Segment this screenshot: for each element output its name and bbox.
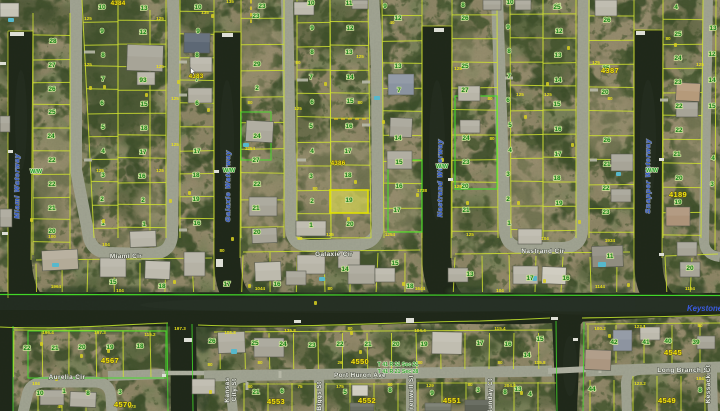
svg-text:16: 16 bbox=[138, 173, 146, 180]
svg-text:8: 8 bbox=[507, 48, 511, 55]
svg-text:80: 80 bbox=[357, 100, 363, 105]
svg-text:8: 8 bbox=[503, 389, 507, 396]
svg-text:24: 24 bbox=[462, 135, 470, 142]
svg-text:3: 3 bbox=[710, 181, 714, 188]
svg-text:100: 100 bbox=[48, 234, 56, 239]
svg-text:21: 21 bbox=[48, 205, 56, 212]
svg-text:19: 19 bbox=[420, 341, 428, 348]
svg-text:14: 14 bbox=[394, 135, 402, 142]
svg-text:75: 75 bbox=[297, 384, 303, 389]
svg-text:125: 125 bbox=[294, 106, 302, 111]
svg-text:42: 42 bbox=[610, 339, 618, 346]
svg-text:25: 25 bbox=[48, 109, 56, 116]
svg-text:20: 20 bbox=[392, 341, 400, 348]
svg-text:104: 104 bbox=[496, 288, 504, 293]
svg-text:1964: 1964 bbox=[51, 284, 62, 289]
svg-text:Sunday Ct: Sunday Ct bbox=[487, 378, 494, 411]
svg-text:125: 125 bbox=[466, 232, 474, 237]
svg-text:13: 13 bbox=[140, 5, 148, 12]
svg-text:14: 14 bbox=[554, 77, 562, 84]
svg-text:Galaxie Waterway: Galaxie Waterway bbox=[225, 150, 232, 222]
svg-text:24: 24 bbox=[674, 55, 682, 62]
svg-text:197.3: 197.3 bbox=[174, 326, 186, 331]
svg-text:17: 17 bbox=[526, 275, 534, 282]
svg-text:125: 125 bbox=[156, 64, 164, 69]
svg-text:12: 12 bbox=[139, 29, 147, 36]
svg-text:40: 40 bbox=[664, 338, 672, 345]
svg-text:W/W: W/W bbox=[646, 168, 659, 174]
svg-text:21: 21 bbox=[252, 205, 260, 212]
svg-text:39: 39 bbox=[692, 339, 700, 346]
svg-text:19: 19 bbox=[555, 200, 563, 207]
svg-text:2: 2 bbox=[141, 197, 145, 204]
svg-text:4: 4 bbox=[528, 391, 532, 398]
svg-text:Galaxie Cir: Galaxie Cir bbox=[315, 251, 353, 258]
svg-text:16: 16 bbox=[193, 220, 201, 227]
svg-text:W/W: W/W bbox=[30, 169, 43, 175]
svg-text:1934: 1934 bbox=[605, 238, 616, 243]
svg-text:18: 18 bbox=[158, 283, 166, 290]
svg-text:125: 125 bbox=[696, 62, 704, 67]
svg-text:8: 8 bbox=[310, 49, 314, 56]
svg-text:26: 26 bbox=[337, 360, 343, 365]
svg-text:4189: 4189 bbox=[669, 190, 687, 199]
svg-text:13: 13 bbox=[709, 25, 717, 32]
svg-text:125: 125 bbox=[156, 168, 164, 173]
svg-text:16: 16 bbox=[504, 341, 512, 348]
svg-text:125: 125 bbox=[84, 62, 92, 67]
svg-text:23: 23 bbox=[462, 159, 470, 166]
svg-text:26: 26 bbox=[48, 86, 56, 93]
svg-text:22: 22 bbox=[253, 181, 261, 188]
svg-text:9: 9 bbox=[100, 28, 104, 35]
svg-text:1644: 1644 bbox=[415, 286, 426, 291]
svg-text:15: 15 bbox=[553, 101, 561, 108]
svg-text:4552: 4552 bbox=[358, 396, 376, 405]
svg-text:115.8: 115.8 bbox=[534, 360, 546, 365]
svg-text:15: 15 bbox=[346, 98, 354, 105]
svg-text:1144: 1144 bbox=[595, 284, 605, 289]
svg-text:22: 22 bbox=[48, 157, 56, 164]
svg-text:19: 19 bbox=[192, 196, 200, 203]
svg-text:21: 21 bbox=[51, 345, 59, 352]
svg-text:100.2: 100.2 bbox=[594, 326, 606, 331]
svg-text:Kessack Ct: Kessack Ct bbox=[705, 364, 712, 403]
svg-text:80: 80 bbox=[347, 326, 353, 331]
svg-text:125: 125 bbox=[96, 168, 104, 173]
svg-text:3: 3 bbox=[101, 172, 105, 179]
svg-text:25: 25 bbox=[553, 4, 561, 11]
svg-text:8: 8 bbox=[461, 2, 465, 9]
svg-text:104: 104 bbox=[102, 242, 110, 247]
svg-text:20: 20 bbox=[346, 221, 354, 228]
svg-text:44: 44 bbox=[588, 386, 596, 393]
svg-text:26: 26 bbox=[603, 137, 611, 144]
svg-text:W/W: W/W bbox=[223, 168, 236, 174]
svg-text:41: 41 bbox=[642, 339, 650, 346]
svg-text:20: 20 bbox=[601, 89, 609, 96]
svg-text:8: 8 bbox=[388, 387, 392, 394]
svg-text:12: 12 bbox=[555, 28, 563, 35]
svg-text:11: 11 bbox=[346, 0, 353, 7]
svg-text:22: 22 bbox=[23, 345, 31, 352]
svg-text:26: 26 bbox=[461, 15, 469, 22]
svg-text:16: 16 bbox=[554, 126, 562, 133]
svg-text:15: 15 bbox=[708, 103, 716, 110]
svg-text:14: 14 bbox=[341, 266, 349, 273]
svg-text:8: 8 bbox=[195, 52, 199, 59]
svg-text:Miami Waterway: Miami Waterway bbox=[14, 153, 21, 219]
svg-text:125: 125 bbox=[516, 92, 524, 97]
svg-text:22: 22 bbox=[48, 181, 56, 188]
svg-text:80: 80 bbox=[297, 236, 303, 241]
svg-text:125: 125 bbox=[326, 232, 334, 237]
svg-text:4: 4 bbox=[310, 148, 314, 155]
svg-text:14: 14 bbox=[523, 352, 531, 359]
svg-text:80: 80 bbox=[665, 36, 671, 41]
svg-text:22: 22 bbox=[675, 103, 683, 110]
svg-text:23: 23 bbox=[602, 209, 610, 216]
svg-text:104: 104 bbox=[696, 376, 704, 381]
svg-text:2: 2 bbox=[255, 85, 259, 92]
svg-text:5: 5 bbox=[343, 389, 347, 396]
svg-text:22: 22 bbox=[675, 127, 683, 134]
svg-text:24: 24 bbox=[253, 133, 261, 140]
svg-text:15: 15 bbox=[536, 336, 544, 343]
svg-text:125: 125 bbox=[156, 16, 164, 21]
svg-text:80: 80 bbox=[327, 286, 333, 291]
svg-text:16: 16 bbox=[273, 281, 281, 288]
svg-text:18: 18 bbox=[344, 172, 352, 179]
svg-text:1: 1 bbox=[62, 388, 66, 395]
svg-text:10: 10 bbox=[36, 390, 44, 397]
svg-text:4553: 4553 bbox=[267, 397, 285, 406]
svg-text:9: 9 bbox=[383, 3, 387, 10]
svg-text:1: 1 bbox=[309, 222, 313, 229]
svg-text:45: 45 bbox=[57, 404, 63, 409]
svg-text:129: 129 bbox=[426, 383, 434, 388]
svg-text:16: 16 bbox=[562, 275, 570, 282]
svg-text:23: 23 bbox=[252, 13, 260, 20]
svg-text:5: 5 bbox=[309, 123, 313, 130]
svg-text:13: 13 bbox=[554, 52, 562, 59]
svg-text:80: 80 bbox=[295, 60, 301, 65]
svg-text:125: 125 bbox=[356, 54, 364, 59]
svg-text:80: 80 bbox=[607, 96, 613, 101]
svg-text:135.8: 135.8 bbox=[284, 328, 296, 333]
svg-text:4570: 4570 bbox=[114, 400, 132, 409]
svg-text:80: 80 bbox=[497, 360, 503, 365]
svg-text:6: 6 bbox=[280, 388, 284, 395]
svg-text:15: 15 bbox=[395, 159, 403, 166]
svg-text:80: 80 bbox=[257, 360, 263, 365]
svg-text:Keystone: Keystone bbox=[687, 304, 720, 313]
svg-text:17: 17 bbox=[554, 151, 562, 158]
svg-text:21: 21 bbox=[364, 341, 372, 348]
svg-text:6: 6 bbox=[310, 99, 314, 106]
svg-text:4: 4 bbox=[508, 147, 512, 154]
svg-text:4384: 4384 bbox=[111, 0, 126, 7]
svg-text:21: 21 bbox=[252, 389, 260, 396]
svg-text:12: 12 bbox=[708, 51, 716, 58]
svg-text:23: 23 bbox=[258, 3, 266, 10]
svg-text:1738: 1738 bbox=[417, 188, 428, 193]
svg-text:16: 16 bbox=[395, 183, 403, 190]
svg-text:7: 7 bbox=[397, 87, 401, 94]
svg-text:18: 18 bbox=[553, 175, 561, 182]
svg-text:20: 20 bbox=[253, 229, 261, 236]
svg-text:23: 23 bbox=[674, 79, 682, 86]
svg-text:122.1: 122.1 bbox=[634, 324, 646, 329]
svg-text:17: 17 bbox=[193, 148, 201, 155]
svg-text:6: 6 bbox=[506, 97, 510, 104]
svg-text:197.3: 197.3 bbox=[94, 330, 106, 335]
svg-text:9: 9 bbox=[196, 28, 200, 35]
svg-text:8: 8 bbox=[101, 52, 105, 59]
svg-text:27: 27 bbox=[252, 157, 260, 164]
svg-text:125: 125 bbox=[84, 16, 92, 21]
svg-text:21: 21 bbox=[603, 161, 611, 168]
svg-text:2: 2 bbox=[506, 196, 510, 203]
svg-text:80: 80 bbox=[697, 323, 703, 328]
svg-text:115.4: 115.4 bbox=[494, 326, 506, 331]
svg-text:17: 17 bbox=[223, 281, 231, 288]
svg-text:104: 104 bbox=[541, 236, 549, 241]
svg-text:Aurelia Cir: Aurelia Cir bbox=[49, 374, 86, 381]
svg-text:13: 13 bbox=[394, 63, 402, 70]
svg-text:28: 28 bbox=[49, 38, 57, 45]
svg-text:4: 4 bbox=[674, 4, 678, 11]
svg-text:80: 80 bbox=[207, 362, 213, 367]
svg-text:123.2: 123.2 bbox=[634, 381, 646, 386]
svg-text:104: 104 bbox=[116, 288, 124, 293]
svg-text:3: 3 bbox=[118, 389, 122, 396]
svg-text:14: 14 bbox=[708, 77, 716, 84]
svg-text:5: 5 bbox=[508, 122, 512, 129]
svg-text:29: 29 bbox=[253, 61, 261, 68]
svg-text:14: 14 bbox=[346, 74, 354, 81]
svg-text:125: 125 bbox=[592, 60, 600, 65]
svg-text:7: 7 bbox=[101, 76, 105, 83]
svg-text:26: 26 bbox=[603, 17, 611, 24]
svg-text:80: 80 bbox=[312, 186, 318, 191]
svg-text:125: 125 bbox=[454, 184, 462, 189]
svg-text:25: 25 bbox=[674, 31, 682, 38]
svg-text:Snapper Waterway: Snapper Waterway bbox=[645, 138, 652, 213]
svg-text:17: 17 bbox=[139, 149, 147, 156]
svg-text:4550: 4550 bbox=[351, 357, 369, 366]
svg-text:9: 9 bbox=[430, 390, 434, 397]
svg-text:1254: 1254 bbox=[385, 232, 396, 237]
svg-text:104.4: 104.4 bbox=[414, 328, 426, 333]
svg-text:21: 21 bbox=[462, 207, 470, 214]
svg-text:13: 13 bbox=[466, 271, 474, 278]
svg-text:80: 80 bbox=[489, 136, 495, 141]
svg-text:4386: 4386 bbox=[331, 160, 346, 167]
svg-text:5: 5 bbox=[101, 124, 105, 131]
svg-text:20: 20 bbox=[686, 265, 694, 272]
svg-text:125: 125 bbox=[171, 96, 179, 101]
svg-text:Biggs St: Biggs St bbox=[316, 381, 323, 411]
svg-text:175: 175 bbox=[336, 384, 344, 389]
svg-text:20: 20 bbox=[675, 175, 683, 182]
svg-text:1154: 1154 bbox=[685, 286, 695, 291]
svg-text:6: 6 bbox=[195, 100, 199, 107]
svg-text:105.8: 105.8 bbox=[224, 330, 236, 335]
svg-text:27: 27 bbox=[461, 87, 469, 94]
svg-text:4545: 4545 bbox=[664, 348, 682, 357]
svg-text:104: 104 bbox=[32, 381, 40, 386]
svg-text:135: 135 bbox=[201, 10, 209, 15]
svg-text:2: 2 bbox=[310, 198, 314, 205]
svg-text:18: 18 bbox=[136, 343, 144, 350]
svg-text:26: 26 bbox=[208, 338, 216, 345]
svg-text:24: 24 bbox=[279, 341, 287, 348]
svg-text:Nastrand Waterway: Nastrand Waterway bbox=[437, 139, 444, 218]
svg-text:80: 80 bbox=[247, 100, 253, 105]
svg-text:15: 15 bbox=[109, 279, 117, 286]
svg-text:Miami Cir: Miami Cir bbox=[110, 253, 142, 260]
svg-text:11: 11 bbox=[607, 253, 614, 260]
svg-text:80: 80 bbox=[467, 382, 473, 387]
svg-text:196.4: 196.4 bbox=[42, 330, 54, 335]
svg-text:10: 10 bbox=[98, 4, 106, 11]
svg-text:15: 15 bbox=[391, 260, 399, 267]
svg-text:1: 1 bbox=[507, 220, 511, 227]
svg-text:4387: 4387 bbox=[601, 66, 619, 75]
svg-text:80: 80 bbox=[219, 248, 225, 253]
svg-text:8: 8 bbox=[86, 390, 90, 397]
svg-text:3: 3 bbox=[476, 387, 480, 394]
svg-text:20: 20 bbox=[461, 183, 469, 190]
svg-text:27: 27 bbox=[48, 62, 56, 69]
svg-text:17: 17 bbox=[393, 207, 401, 214]
svg-text:Nastrand Cir: Nastrand Cir bbox=[521, 248, 564, 255]
svg-text:16: 16 bbox=[345, 123, 353, 130]
svg-text:20: 20 bbox=[78, 344, 86, 351]
svg-text:City St: City St bbox=[231, 378, 238, 402]
svg-text:4567: 4567 bbox=[101, 356, 119, 365]
svg-text:15: 15 bbox=[140, 101, 148, 108]
svg-text:Long Branch St: Long Branch St bbox=[657, 367, 711, 374]
svg-text:Kansas: Kansas bbox=[224, 377, 231, 402]
svg-text:125: 125 bbox=[171, 142, 179, 147]
svg-text:135: 135 bbox=[226, 0, 234, 4]
svg-text:7: 7 bbox=[507, 73, 511, 80]
svg-text:24: 24 bbox=[47, 133, 55, 140]
svg-text:18: 18 bbox=[406, 283, 414, 290]
svg-text:22: 22 bbox=[602, 185, 610, 192]
svg-text:T 41 R 21 Sec 21: T 41 R 21 Sec 21 bbox=[378, 362, 419, 368]
svg-text:19: 19 bbox=[674, 199, 682, 206]
svg-text:12: 12 bbox=[394, 15, 402, 22]
svg-text:40: 40 bbox=[389, 20, 395, 25]
svg-text:4: 4 bbox=[711, 155, 715, 162]
svg-text:1254: 1254 bbox=[245, 146, 256, 151]
svg-text:17: 17 bbox=[344, 148, 352, 155]
svg-text:18: 18 bbox=[192, 172, 200, 179]
svg-text:4549: 4549 bbox=[658, 396, 676, 405]
svg-text:9: 9 bbox=[310, 25, 314, 32]
svg-text:W/W: W/W bbox=[436, 164, 449, 170]
svg-text:13: 13 bbox=[345, 49, 353, 56]
svg-text:9: 9 bbox=[506, 24, 510, 31]
svg-text:80: 80 bbox=[487, 96, 493, 101]
svg-text:3: 3 bbox=[309, 173, 313, 180]
svg-text:80: 80 bbox=[247, 384, 253, 389]
svg-text:7: 7 bbox=[309, 74, 313, 81]
svg-text:6: 6 bbox=[100, 100, 104, 107]
svg-text:23: 23 bbox=[308, 342, 316, 349]
svg-text:4551: 4551 bbox=[443, 396, 461, 405]
svg-text:204.4: 204.4 bbox=[504, 383, 516, 388]
svg-text:2: 2 bbox=[100, 196, 104, 203]
svg-text:80: 80 bbox=[387, 382, 393, 387]
svg-text:10: 10 bbox=[307, 0, 315, 7]
svg-text:12: 12 bbox=[346, 25, 354, 32]
svg-text:17: 17 bbox=[476, 340, 484, 347]
svg-text:4: 4 bbox=[101, 148, 105, 155]
svg-text:25: 25 bbox=[251, 340, 259, 347]
svg-text:115.2: 115.2 bbox=[144, 332, 156, 337]
svg-text:T 41 R 21 Sec 28: T 41 R 21 Sec 28 bbox=[378, 369, 419, 375]
svg-text:8: 8 bbox=[698, 387, 702, 394]
svg-text:18: 18 bbox=[140, 125, 148, 132]
svg-text:93: 93 bbox=[139, 77, 147, 84]
svg-text:125: 125 bbox=[454, 66, 462, 71]
svg-text:25: 25 bbox=[461, 63, 469, 70]
svg-text:22: 22 bbox=[336, 341, 344, 348]
svg-text:1: 1 bbox=[142, 221, 146, 228]
svg-text:21: 21 bbox=[673, 151, 681, 158]
svg-text:1044: 1044 bbox=[255, 286, 266, 291]
svg-text:3: 3 bbox=[506, 171, 510, 178]
svg-text:19: 19 bbox=[345, 197, 353, 204]
svg-text:10: 10 bbox=[506, 0, 514, 6]
svg-text:Trenwell St: Trenwell St bbox=[408, 374, 415, 411]
svg-text:125: 125 bbox=[544, 92, 552, 97]
